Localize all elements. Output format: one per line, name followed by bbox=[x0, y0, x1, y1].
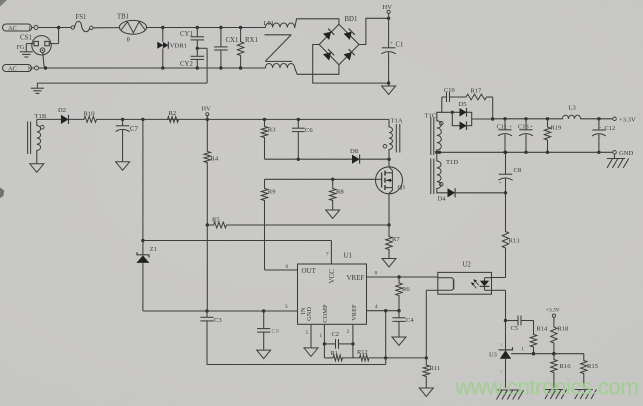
svg-text:R15: R15 bbox=[587, 363, 599, 370]
svg-text:TB1: TB1 bbox=[117, 14, 129, 21]
svg-text:C5: C5 bbox=[511, 325, 518, 332]
svg-text:BD1: BD1 bbox=[345, 16, 358, 23]
svg-text:1: 1 bbox=[320, 333, 323, 339]
svg-text:R19: R19 bbox=[551, 125, 562, 132]
svg-text:R4: R4 bbox=[211, 156, 219, 163]
svg-text:Q1: Q1 bbox=[398, 184, 406, 191]
svg-text:R9: R9 bbox=[268, 189, 276, 196]
svg-text:6: 6 bbox=[286, 264, 289, 270]
svg-text:OUT: OUT bbox=[302, 267, 317, 275]
svg-text:R5: R5 bbox=[212, 217, 220, 224]
svg-text:R10: R10 bbox=[84, 110, 96, 117]
svg-text:L3: L3 bbox=[569, 105, 577, 112]
svg-text:θ: θ bbox=[127, 37, 130, 44]
svg-text:C2: C2 bbox=[332, 331, 339, 338]
svg-text:C9: C9 bbox=[272, 328, 279, 335]
svg-text:3: 3 bbox=[285, 304, 288, 310]
svg-text:C3: C3 bbox=[214, 317, 222, 324]
svg-text:+: + bbox=[530, 125, 533, 130]
svg-text:CX1: CX1 bbox=[226, 37, 239, 44]
svg-text:U1: U1 bbox=[344, 252, 353, 260]
svg-text:8: 8 bbox=[375, 271, 378, 277]
svg-text:4: 4 bbox=[375, 304, 378, 310]
svg-text:HV: HV bbox=[383, 4, 393, 11]
svg-text:C4: C4 bbox=[406, 317, 414, 324]
svg-text:U2: U2 bbox=[463, 262, 472, 269]
svg-text:CY2: CY2 bbox=[180, 61, 193, 68]
svg-text:RX1: RX1 bbox=[245, 37, 258, 44]
svg-text:R11: R11 bbox=[430, 365, 441, 372]
svg-text:R7: R7 bbox=[392, 236, 400, 243]
svg-text:T1A: T1A bbox=[391, 118, 403, 125]
svg-text:R8: R8 bbox=[336, 189, 344, 196]
svg-text:T1D: T1D bbox=[446, 159, 458, 166]
svg-text:FG: FG bbox=[17, 45, 25, 51]
svg-text:Z1: Z1 bbox=[150, 246, 157, 253]
svg-text:C11: C11 bbox=[497, 124, 507, 131]
svg-text:R1: R1 bbox=[331, 350, 338, 357]
svg-text:2: 2 bbox=[347, 329, 350, 335]
svg-text:+: + bbox=[390, 41, 393, 47]
svg-text:GND: GND bbox=[306, 307, 313, 321]
svg-text:VREF: VREF bbox=[351, 304, 358, 321]
svg-text:+3.3V: +3.3V bbox=[546, 308, 560, 314]
svg-text:D4: D4 bbox=[438, 196, 447, 203]
svg-text:www.cntronics.com: www.cntronics.com bbox=[454, 375, 639, 400]
svg-text:C6: C6 bbox=[305, 127, 313, 134]
svg-text:C1: C1 bbox=[396, 42, 404, 49]
svg-text:GND: GND bbox=[619, 150, 634, 157]
svg-text:C13: C13 bbox=[518, 124, 529, 131]
svg-text:R18: R18 bbox=[558, 326, 569, 333]
svg-text:CY1: CY1 bbox=[180, 31, 193, 38]
svg-text:AC: AC bbox=[8, 66, 17, 73]
svg-text:R6: R6 bbox=[402, 286, 410, 293]
svg-text:AC: AC bbox=[8, 25, 17, 32]
svg-text:D5: D5 bbox=[459, 101, 468, 108]
svg-text:C10: C10 bbox=[444, 87, 455, 94]
svg-text:VREF: VREF bbox=[347, 274, 365, 282]
svg-text:7: 7 bbox=[326, 252, 329, 258]
svg-text:CS1: CS1 bbox=[20, 34, 33, 42]
svg-text:R16: R16 bbox=[560, 363, 572, 370]
svg-text:R17: R17 bbox=[471, 88, 482, 95]
svg-text:R3: R3 bbox=[268, 127, 276, 134]
svg-text:VDR1: VDR1 bbox=[170, 43, 187, 50]
svg-text:R12: R12 bbox=[357, 349, 368, 356]
svg-text:R13: R13 bbox=[509, 238, 521, 245]
svg-text:+3.3V: +3.3V bbox=[619, 116, 636, 123]
svg-text:U3: U3 bbox=[489, 352, 497, 359]
svg-text:R14: R14 bbox=[537, 326, 548, 333]
svg-text:VCC: VCC bbox=[328, 269, 336, 284]
svg-text:C7: C7 bbox=[130, 126, 139, 133]
svg-text:5: 5 bbox=[306, 330, 309, 336]
svg-text:FS1: FS1 bbox=[76, 14, 87, 21]
svg-text:COMP: COMP bbox=[322, 304, 329, 323]
svg-text:R2: R2 bbox=[169, 110, 177, 117]
svg-text:+: + bbox=[509, 125, 512, 130]
svg-text:+: + bbox=[499, 182, 502, 187]
svg-text:D2: D2 bbox=[58, 107, 66, 114]
svg-text:C8: C8 bbox=[514, 167, 522, 174]
svg-text:D8: D8 bbox=[350, 148, 359, 155]
svg-text:HV: HV bbox=[202, 106, 212, 113]
svg-text:C12: C12 bbox=[605, 125, 616, 132]
